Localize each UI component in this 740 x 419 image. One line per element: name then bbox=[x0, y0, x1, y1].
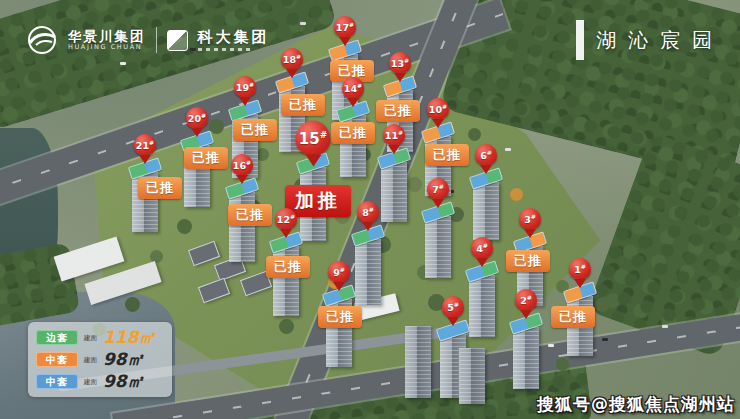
marker-label: 10# bbox=[429, 104, 447, 115]
marker-label: 20# bbox=[188, 113, 206, 124]
legend-row-2: 中套建面98㎡ bbox=[36, 373, 164, 390]
building-marker-2: 2# bbox=[515, 289, 537, 311]
building-marker-12: 12# bbox=[275, 208, 297, 230]
building-marker-8: 8# bbox=[357, 201, 379, 223]
tower-8 bbox=[352, 229, 384, 305]
marker-label: 16# bbox=[233, 160, 251, 171]
building-marker-1: 1# bbox=[569, 258, 591, 280]
tower-2 bbox=[510, 317, 542, 389]
legend-area-value: 98㎡ bbox=[103, 373, 144, 390]
marker-label: 18# bbox=[283, 54, 301, 65]
status-launched-1: 已推 bbox=[551, 306, 595, 328]
brand-right-tagline bbox=[198, 48, 254, 51]
legend-panel: 边套建面118㎡中套建面98㎡中套建面98㎡ bbox=[28, 322, 172, 397]
trees bbox=[0, 0, 9, 9]
tower-unmarked bbox=[404, 326, 432, 398]
building-marker-16: 16# bbox=[231, 154, 253, 176]
building-marker-20: 20# bbox=[186, 107, 208, 129]
status-launched-13: 已推 bbox=[376, 100, 420, 122]
brand-left-sub: HUAJING CHUAN bbox=[68, 44, 146, 51]
tower-11 bbox=[378, 152, 410, 222]
keda-logo-icon bbox=[167, 30, 188, 51]
project-title-block: 湖沁宸园 bbox=[576, 20, 724, 60]
tower-body bbox=[355, 239, 381, 305]
brand-left-name: 华景川集团 bbox=[68, 29, 146, 45]
marker-label: 3# bbox=[524, 214, 536, 225]
legend-area-prefix: 建面 bbox=[84, 355, 98, 364]
legend-area-value: 118㎡ bbox=[103, 329, 156, 346]
tower-4 bbox=[466, 265, 498, 337]
building-marker-10: 10# bbox=[427, 98, 449, 120]
marker-label: 9# bbox=[333, 267, 345, 278]
legend-chip-2: 中套 bbox=[36, 374, 78, 389]
marker-label: 1# bbox=[574, 264, 586, 275]
status-launched-21: 已推 bbox=[138, 177, 182, 199]
tower-body bbox=[469, 275, 495, 337]
huajingchuan-logo-icon bbox=[26, 24, 58, 56]
status-launched-18: 已推 bbox=[281, 94, 325, 116]
marker-label: 8# bbox=[362, 207, 374, 218]
marker-label: 4# bbox=[476, 243, 488, 254]
brand-divider bbox=[156, 27, 157, 53]
building-marker-4: 4# bbox=[471, 237, 493, 259]
tower-20 bbox=[181, 135, 213, 207]
marker-label: 11# bbox=[385, 130, 403, 141]
status-launched-9: 已推 bbox=[318, 306, 362, 328]
marker-label: 21# bbox=[136, 140, 154, 151]
building-marker-18: 18# bbox=[281, 48, 303, 70]
marker-label: 7# bbox=[432, 184, 444, 195]
project-title: 湖沁宸园 bbox=[596, 27, 724, 54]
tower-body bbox=[425, 216, 451, 278]
tower-body bbox=[381, 162, 407, 222]
building-marker-14: 14# bbox=[342, 77, 364, 99]
building-marker-15: 15# bbox=[296, 121, 331, 156]
status-launched-12: 已推 bbox=[266, 256, 310, 278]
tower-body bbox=[229, 192, 255, 262]
building-marker-7: 7# bbox=[427, 178, 449, 200]
building-marker-11: 11# bbox=[383, 124, 405, 146]
aerial-site-map: 17#已推18#已推19#已推20#已推21#已推13#已推14#已推10#已推… bbox=[0, 0, 740, 419]
tower-6 bbox=[470, 172, 502, 240]
legend-chip-0: 边套 bbox=[36, 330, 78, 345]
marker-label: 15# bbox=[299, 130, 327, 146]
building-marker-3: 3# bbox=[519, 208, 541, 230]
legend-row-1: 中套建面98㎡ bbox=[36, 351, 164, 368]
status-launched-10: 已推 bbox=[425, 144, 469, 166]
building-marker-17: 17# bbox=[334, 16, 356, 38]
building-marker-5: 5# bbox=[442, 296, 464, 318]
status-launched-16: 已推 bbox=[228, 204, 272, 226]
marker-label: 12# bbox=[277, 214, 295, 225]
marker-label: 14# bbox=[344, 83, 362, 94]
title-bar-icon bbox=[576, 20, 584, 60]
marker-label: 2# bbox=[520, 295, 532, 306]
building-marker-6: 6# bbox=[475, 144, 497, 166]
building-marker-21: 21# bbox=[134, 134, 156, 156]
brand-right-name: 科大集团 bbox=[198, 29, 270, 46]
status-launched-3: 已推 bbox=[506, 250, 550, 272]
building-marker-19: 19# bbox=[234, 76, 256, 98]
status-launched-19: 已推 bbox=[233, 119, 277, 141]
building-marker-9: 9# bbox=[328, 261, 350, 283]
status-launched-14: 已推 bbox=[331, 122, 375, 144]
tower-body bbox=[473, 182, 499, 240]
tower-unmarked bbox=[458, 348, 486, 404]
legend-area-prefix: 建面 bbox=[84, 377, 98, 386]
status-launched-20: 已推 bbox=[184, 147, 228, 169]
legend-chip-1: 中套 bbox=[36, 352, 78, 367]
marker-label: 6# bbox=[480, 150, 492, 161]
marker-label: 5# bbox=[447, 302, 459, 313]
marker-label: 19# bbox=[236, 82, 254, 93]
tower-9 bbox=[323, 289, 355, 367]
building-marker-13: 13# bbox=[389, 52, 411, 74]
legend-area-value: 98㎡ bbox=[103, 351, 144, 368]
watermark: 搜狐号@搜狐焦点湖州站 bbox=[537, 393, 735, 416]
tower-body bbox=[513, 327, 539, 389]
marker-label: 17# bbox=[336, 22, 354, 33]
marker-label: 13# bbox=[391, 58, 409, 69]
tower-7 bbox=[422, 206, 454, 278]
legend-area-prefix: 建面 bbox=[84, 333, 98, 342]
header-brands: 华景川集团 HUAJING CHUAN 科大集团 bbox=[26, 24, 270, 56]
legend-row-0: 边套建面118㎡ bbox=[36, 329, 164, 346]
